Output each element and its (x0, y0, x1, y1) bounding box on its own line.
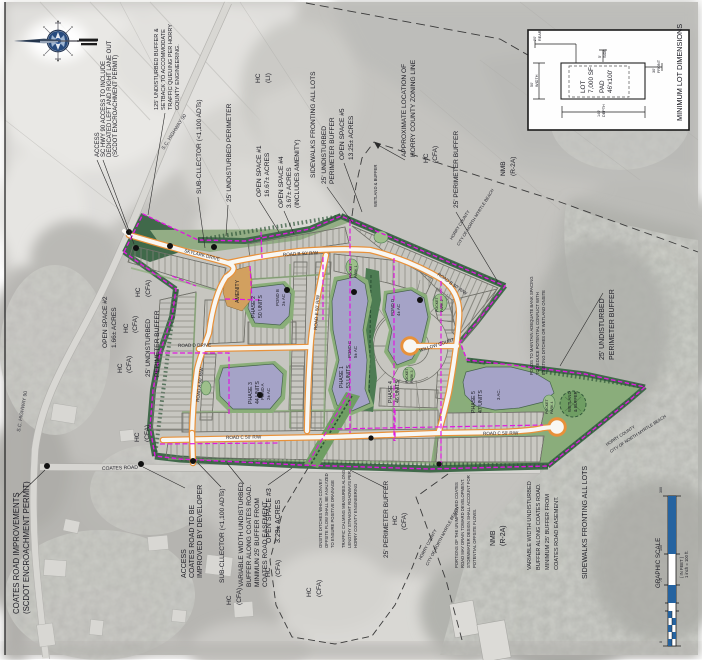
svg-text:50 UNITS: 50 UNITS (258, 295, 264, 318)
svg-text:HC: HC (306, 587, 313, 597)
svg-text:300: 300 (659, 487, 663, 493)
svg-text:(CFA): (CFA) (401, 513, 408, 530)
svg-text:PARK 1: PARK 1 (354, 265, 358, 278)
svg-text:ROAD MAY DRAIN TOWARD DEVELOPM: ROAD MAY DRAIN TOWARD DEVELOPMENT. (460, 479, 465, 568)
svg-text:(CFA): (CFA) (144, 425, 151, 442)
svg-text:(R-2A): (R-2A) (510, 157, 517, 176)
svg-text:APPROXIMATE LOCATION OF: APPROXIMATE LOCATION OF (401, 64, 408, 157)
svg-text:POCKET: POCKET (405, 367, 409, 383)
svg-text:SETBACK TO ACCOMMODATE: SETBACK TO ACCOMMODATE (161, 29, 167, 110)
svg-text:POND D: POND D (390, 299, 395, 316)
svg-text:ACCESS: ACCESS (181, 549, 188, 578)
svg-text:(INCLUDES AMENITY): (INCLUDES AMENITY) (294, 139, 301, 208)
svg-text:PHASE 2: PHASE 2 (251, 296, 257, 318)
svg-text:SIDE: SIDE (603, 49, 607, 58)
svg-text:(SCDOT ENCROACHMENT PERMIT): (SCDOT ENCROACHMENT PERMIT) (22, 481, 31, 614)
svg-text:POND B: POND B (275, 289, 280, 306)
svg-text:25' UNDISTURBED: 25' UNDISTURBED (321, 126, 328, 184)
svg-text:(LI): (LI) (265, 73, 272, 83)
svg-text:47 UNITS: 47 UNITS (478, 390, 484, 413)
svg-text:(CFA): (CFA) (126, 356, 133, 373)
svg-text:2± AC: 2± AC (266, 388, 271, 400)
svg-text:1.66± ACRES: 1.66± ACRES (111, 307, 118, 348)
svg-text:HC: HC (226, 595, 233, 605)
svg-text:30': 30' (652, 68, 656, 73)
svg-text:PORTIONS OF THE UNIMPROVED COA: PORTIONS OF THE UNIMPROVED COATES (454, 482, 459, 568)
svg-text:VARIABLE WIDTH UNDISTURBED: VARIABLE WIDTH UNDISTURBED (527, 481, 533, 570)
svg-text:FRONT: FRONT (657, 59, 661, 73)
svg-text:2± AC: 2± AC (281, 294, 286, 306)
svg-text:(R-2A): (R-2A) (500, 525, 507, 546)
svg-text:HC: HC (134, 432, 141, 442)
svg-text:AMENITY: AMENITY (235, 279, 241, 303)
svg-text:ROAD C 50' R/W: ROAD C 50' R/W (226, 434, 262, 440)
svg-text:25' UNDISTURBED PERIMETER: 25' UNDISTURBED PERIMETER (226, 103, 233, 202)
svg-text:3 AC.: 3 AC. (496, 389, 501, 400)
svg-text:COATES ROAD EASEMENT.: COATES ROAD EASEMENT. (554, 496, 560, 570)
svg-text:SUB-CLLECTOR (<1,100 ADTs): SUB-CLLECTOR (<1,100 ADTs) (196, 99, 203, 194)
svg-text:PHASE 3: PHASE 3 (248, 382, 254, 404)
svg-text:MINIMUN 25' BUFFER FROM: MINIMUN 25' BUFFER FROM (254, 498, 261, 587)
svg-text:3.67± ACRES: 3.67± ACRES (286, 167, 293, 208)
svg-text:PHASE 4: PHASE 4 (388, 381, 394, 403)
svg-text:HC: HC (117, 363, 124, 373)
svg-text:PHASE 1: PHASE 1 (339, 366, 345, 388)
svg-text:ONSITE DITCHES WHICH CONVEY: ONSITE DITCHES WHICH CONVEY (318, 478, 323, 548)
svg-text:WETLAND: WETLAND (567, 392, 572, 412)
svg-text:140': 140' (597, 110, 601, 117)
svg-text:25' PERIMETER BUFFER: 25' PERIMETER BUFFER (453, 131, 460, 208)
svg-text:ROAD C 50' R/W: ROAD C 50' R/W (483, 430, 519, 436)
svg-text:REAR: REAR (538, 30, 542, 41)
svg-text:TRAFFIC QUEUING PER HORRY: TRAFFIC QUEUING PER HORRY (168, 24, 174, 110)
svg-text:COUNTY ENGINEERING.: COUNTY ENGINEERING. (175, 44, 181, 110)
svg-text:PERIMETER BUFFER: PERIMETER BUFFER (154, 310, 161, 377)
svg-text:46'x100': 46'x100' (607, 70, 614, 93)
svg-text:VARIABLE WIDTH UNDISTURBED: VARIABLE WIDTH UNDISTURBED (238, 482, 245, 587)
svg-text:POCKET: POCKET (545, 398, 549, 414)
svg-text:3.23± ACRES: 3.23± ACRES (275, 500, 282, 543)
svg-text:POND C: POND C (347, 341, 352, 358)
svg-text:OPEN SPACE #3: OPEN SPACE #3 (266, 488, 273, 543)
svg-text:OPEN SPACE #5: OPEN SPACE #5 (339, 108, 346, 160)
svg-text:25' UNDISTURBED: 25' UNDISTURBED (599, 298, 606, 360)
svg-text:EXISTING DITCHES OR WETLAND ON: EXISTING DITCHES OR WETLAND ONSITE (541, 290, 546, 375)
svg-text:1 inch = 100 ft.: 1 inch = 100 ft. (684, 550, 689, 578)
svg-text:TRAFFIC CALMING MEASURES ALONG: TRAFFIC CALMING MEASURES ALONG (341, 470, 346, 548)
svg-text:HORRY COUNTY ENGINEERING: HORRY COUNTY ENGINEERING (353, 484, 358, 548)
svg-text:ROAD D DRIVE: ROAD D DRIVE (178, 342, 211, 348)
svg-text:HC: HC (265, 567, 272, 577)
svg-text:POCKET: POCKET (435, 296, 439, 312)
svg-text:HORRY COUNTY ZONING LINE: HORRY COUNTY ZONING LINE (410, 59, 417, 157)
svg-text:5': 5' (598, 55, 602, 58)
svg-text:HC: HC (135, 287, 142, 297)
svg-text:STORMWATER DESIGN SHALL ACCOUN: STORMWATER DESIGN SHALL ACCOUNT FOR (466, 475, 471, 568)
svg-text:0: 0 (659, 641, 663, 643)
svg-text:SUB-CLLECTOR (<1,100 ADTs): SUB-CLLECTOR (<1,100 ADTs) (219, 488, 226, 583)
svg-text:HC: HC (123, 323, 130, 333)
svg-text:(CFA): (CFA) (316, 580, 323, 597)
svg-text:PHASE 5: PHASE 5 (471, 391, 477, 413)
svg-text:COATES ROAD IMPROVEMENTS: COATES ROAD IMPROVEMENTS (12, 492, 21, 614)
svg-text:16.67± ACRES: 16.67± ACRES (264, 152, 271, 197)
svg-text:PARK 2: PARK 2 (440, 299, 444, 312)
svg-text:PARK 3: PARK 3 (410, 370, 414, 383)
svg-text:WETLAND & BUFFER: WETLAND & BUFFER (373, 165, 378, 207)
svg-text:(CFA): (CFA) (132, 316, 139, 333)
svg-text:DEPTH: DEPTH (602, 104, 606, 117)
svg-text:LOT: LOT (580, 80, 587, 93)
svg-text:TO REDUCE POTENTIAL CONFLICT W: TO REDUCE POTENTIAL CONFLICT WITH (535, 292, 540, 375)
svg-text:125' UNDISTURBED BUFFER &: 125' UNDISTURBED BUFFER & (154, 28, 160, 110)
svg-text:MINIMUM 25' BUFFER FROM: MINIMUM 25' BUFFER FROM (545, 494, 551, 570)
svg-text:75: 75 (659, 578, 663, 582)
svg-text:PERIMETER BUFFER: PERIMETER BUFFER (329, 117, 336, 184)
svg-text:OPEN SPACE #2: OPEN SPACE #2 (102, 296, 109, 348)
svg-text:HC: HC (423, 153, 430, 163)
svg-text:(CFA): (CFA) (145, 280, 152, 297)
svg-text:MINIMUM LOT DIMENSIONS: MINIMUM LOT DIMENSIONS (675, 24, 684, 121)
svg-text:4± AC: 4± AC (396, 304, 401, 316)
svg-text:WIDTH: WIDTH (535, 74, 539, 87)
svg-text:OPEN SPACE #1: OPEN SPACE #1 (256, 145, 263, 197)
svg-text:OPEN SPACE #4: OPEN SPACE #4 (278, 156, 285, 208)
svg-text:COATES ROAD TO BE: COATES ROAD TO BE (189, 505, 196, 578)
svg-text:46 UNITS: 46 UNITS (395, 380, 401, 403)
svg-text:25' PERIMETER BUFFER: 25' PERIMETER BUFFER (383, 481, 390, 558)
svg-text:TO ENSURE POSITIVE DRAINAGE: TO ENSURE POSITIVE DRAINAGE (330, 480, 335, 548)
svg-text:HC: HC (255, 73, 262, 83)
svg-text:BUFFER ALONG COATES ROAD.: BUFFER ALONG COATES ROAD. (246, 485, 253, 587)
svg-text:NMB: NMB (490, 530, 497, 546)
svg-text:LENGTHY STRAIGHT ROADWAYS PER: LENGTHY STRAIGHT ROADWAYS PER (347, 471, 352, 548)
svg-text:NMB: NMB (500, 161, 507, 176)
svg-text:(SCDOT ENCROACHMENT PERMIT): (SCDOT ENCROACHMENT PERMIT) (113, 55, 119, 157)
svg-text:POCKET: POCKET (349, 262, 353, 278)
svg-text:20': 20' (533, 36, 537, 41)
svg-text:(CFA): (CFA) (275, 560, 282, 577)
svg-text:BUFFER ALONG COATES ROAD.: BUFFER ALONG COATES ROAD. (536, 483, 542, 570)
svg-text:PERIMETER BUFFER: PERIMETER BUFFER (609, 289, 616, 360)
svg-text:& BUFFER: & BUFFER (573, 391, 578, 412)
svg-text:7,000 SF: 7,000 SF (588, 67, 595, 93)
svg-text:PAD: PAD (599, 80, 606, 93)
svg-text:SIDEWALKS FRONTING ALL LOTS: SIDEWALKS FRONTING ALL LOTS (582, 466, 589, 579)
svg-text:(CFA): (CFA) (432, 146, 439, 163)
svg-text:44 UNITS: 44 UNITS (255, 381, 261, 404)
svg-text:150: 150 (659, 545, 663, 551)
svg-text:IMPROVED BY DEVELOPER: IMPROVED BY DEVELOPER (197, 485, 204, 578)
svg-text:POTENTIAL OFFSITE FLOWS.: POTENTIAL OFFSITE FLOWS. (472, 509, 477, 568)
svg-text:PARK 4: PARK 4 (550, 401, 554, 414)
svg-text:50': 50' (530, 82, 534, 87)
svg-text:25' UNDISTURBED: 25' UNDISTURBED (145, 319, 152, 377)
svg-text:HC: HC (392, 515, 399, 525)
svg-text:(CFA): (CFA) (236, 588, 243, 605)
svg-text:PONDS TO MAINTAIN ADEQUATE BAN: PONDS TO MAINTAIN ADEQUATE BANK SPACING (529, 276, 534, 375)
svg-text:5± AC: 5± AC (353, 346, 358, 358)
svg-text:OFFSITE FLOW SHALL BE ANALYZED: OFFSITE FLOW SHALL BE ANALYZED (324, 473, 329, 548)
svg-text:13.25± ACRES: 13.25± ACRES (348, 115, 355, 160)
svg-text:SIDEWALKS FRONTING ALL LOTS: SIDEWALKS FRONTING ALL LOTS (310, 71, 317, 178)
svg-text:COATES ROAD: COATES ROAD (102, 465, 139, 472)
svg-text:53 UNITS: 53 UNITS (346, 365, 352, 388)
